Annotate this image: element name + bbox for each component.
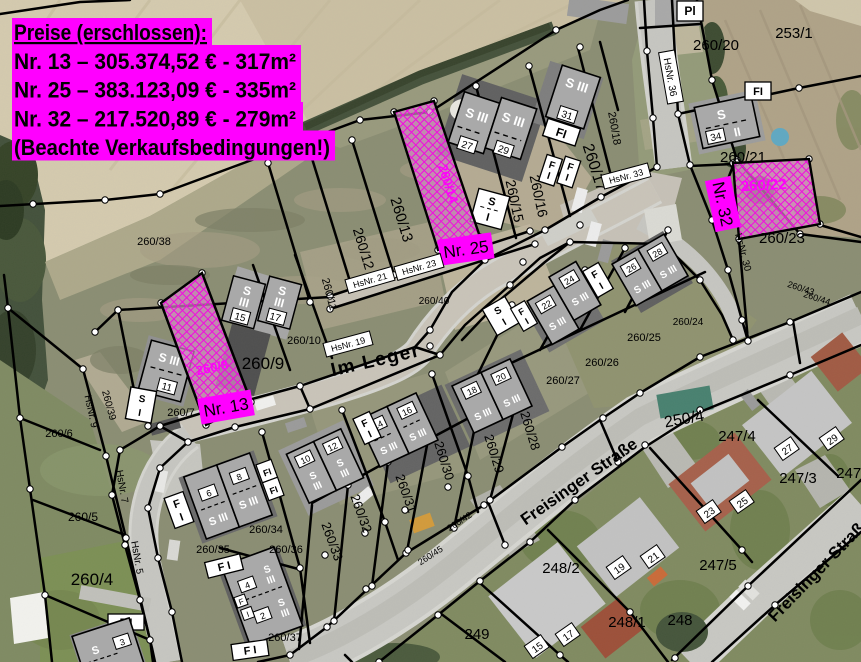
svg-text:260/36: 260/36 <box>269 544 303 556</box>
svg-text:260/26: 260/26 <box>585 357 619 369</box>
svg-text:260/7: 260/7 <box>167 407 195 419</box>
svg-text:248/2: 248/2 <box>542 560 580 577</box>
svg-text:247/2: 247/2 <box>836 465 861 482</box>
svg-text:260/38: 260/38 <box>137 236 171 248</box>
svg-text:247/4: 247/4 <box>718 428 756 445</box>
svg-text:260/37: 260/37 <box>268 632 302 644</box>
svg-text:(Beachte Verkaufsbedingungen!): (Beachte Verkaufsbedingungen!) <box>14 135 330 160</box>
svg-text:260/9: 260/9 <box>242 354 285 373</box>
svg-text:F I: F I <box>243 644 257 658</box>
svg-text:249: 249 <box>464 626 489 643</box>
svg-text:260/23: 260/23 <box>759 230 805 247</box>
svg-text:260/10: 260/10 <box>287 335 321 347</box>
svg-text:248: 248 <box>667 612 692 629</box>
svg-text:Nr. 25 – 383.123,09 € - 335m²: Nr. 25 – 383.123,09 € - 335m² <box>14 78 296 103</box>
svg-text:260/6: 260/6 <box>45 428 73 440</box>
svg-text:247/5: 247/5 <box>699 557 737 574</box>
svg-text:Nr. 13 – 305.374,52 € - 317m²: Nr. 13 – 305.374,52 € - 317m² <box>14 49 296 74</box>
svg-text:260/4: 260/4 <box>71 570 114 589</box>
svg-text:FI: FI <box>753 86 763 98</box>
svg-text:260/21: 260/21 <box>720 149 766 166</box>
svg-text:260/22: 260/22 <box>740 176 787 195</box>
svg-text:260/35: 260/35 <box>196 544 230 556</box>
svg-text:260/5: 260/5 <box>68 510 98 524</box>
svg-text:Preise (erschlossen):: Preise (erschlossen): <box>14 20 207 45</box>
svg-text:Nr. 32 – 217.520,89 € - 279m²: Nr. 32 – 217.520,89 € - 279m² <box>14 107 296 132</box>
svg-text:260/24: 260/24 <box>673 317 704 328</box>
svg-text:253/1: 253/1 <box>775 25 813 42</box>
svg-text:260/34: 260/34 <box>249 524 283 536</box>
svg-text:248/1: 248/1 <box>608 614 646 631</box>
svg-text:260/20: 260/20 <box>693 37 739 54</box>
svg-text:260/27: 260/27 <box>546 375 580 387</box>
svg-text:260/40: 260/40 <box>419 296 450 307</box>
svg-text:Pl: Pl <box>684 4 695 18</box>
svg-text:247/3: 247/3 <box>779 470 817 487</box>
svg-text:260/25: 260/25 <box>627 332 661 344</box>
